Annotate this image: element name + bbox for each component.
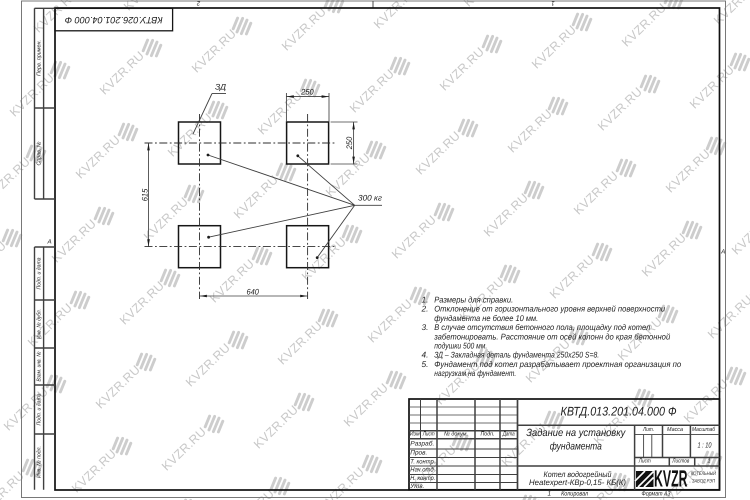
svg-text:А: А [720,249,725,256]
svg-text:Формат А3: Формат А3 [642,490,671,497]
svg-text:1 : 10: 1 : 10 [698,440,713,449]
svg-text:1: 1 [707,459,710,465]
svg-text:1: 1 [551,0,554,7]
svg-text:Подп.: Подп. [481,431,495,438]
svg-text:ЗД: ЗД [215,83,226,92]
svg-text:Справ. №: Справ. № [37,142,43,166]
svg-text:2: 2 [196,0,201,7]
svg-text:№ докум.: № докум. [444,431,468,438]
svg-text:КВТУ.026.201.04.000 Ф: КВТУ.026.201.04.000 Ф [65,15,163,25]
svg-text:640: 640 [246,288,259,297]
svg-text:Разраб.: Разраб. [410,441,434,448]
svg-text:250: 250 [300,88,314,97]
svg-text:Масштаб: Масштаб [692,426,716,433]
svg-text:Лит.: Лит. [642,427,654,433]
svg-text:Утв.: Утв. [409,483,424,490]
svg-text:Лист: Лист [638,459,651,465]
svg-text:Дата: Дата [502,432,515,438]
svg-text:Масса: Масса [667,427,684,433]
svg-text:615: 615 [141,188,150,201]
svg-text:Взам. инв. №: Взам. инв. № [37,352,43,382]
svg-text:5.: 5. [422,359,429,369]
svg-text:Листов: Листов [671,459,689,465]
svg-text:КОТЕЛЬНЫЙ: КОТЕЛЬНЫЙ [691,470,716,477]
svg-text:ЗАВОД РЭП: ЗАВОД РЭП [692,479,715,485]
svg-text:Подп. и дата: Подп. и дата [36,394,43,426]
svg-text:Изм: Изм [410,432,420,438]
svg-text:3.: 3. [422,322,429,332]
svg-text:Копировал: Копировал [561,490,588,497]
svg-text:300 кг: 300 кг [358,193,382,202]
svg-text:1: 1 [548,490,552,497]
svg-text:Перв. примен.: Перв. примен. [37,40,43,76]
svg-text:2.: 2. [421,304,429,314]
svg-text:Heatexpert-КВр-0,15- КБ(К): Heatexpert-КВр-0,15- КБ(К) [529,478,626,487]
svg-text:Задание на установку: Задание на установку [526,427,626,439]
svg-text:Инв. № дубл.: Инв. № дубл. [36,309,43,339]
svg-text:Инв. № подл.: Инв. № подл. [36,446,43,478]
svg-text:KVZR: KVZR [654,465,688,491]
svg-text:КВТД.013.201.04.000 Ф: КВТД.013.201.04.000 Ф [561,404,677,418]
svg-text:Подп. и дата: Подп. и дата [36,258,43,290]
svg-text:А: А [46,239,51,246]
svg-text:Лист: Лист [422,432,435,438]
svg-text:фундамента: фундамента [550,440,602,452]
svg-text:Пров.: Пров. [410,450,427,457]
svg-text:Т. контр.: Т. контр. [410,458,435,465]
svg-text:нагрузкам на фундамент.: нагрузкам на фундамент. [434,368,516,378]
svg-text:250: 250 [345,136,354,150]
svg-text:Н. контр.: Н. контр. [410,475,435,482]
svg-text:Нач.отд.: Нач.отд. [410,467,435,474]
